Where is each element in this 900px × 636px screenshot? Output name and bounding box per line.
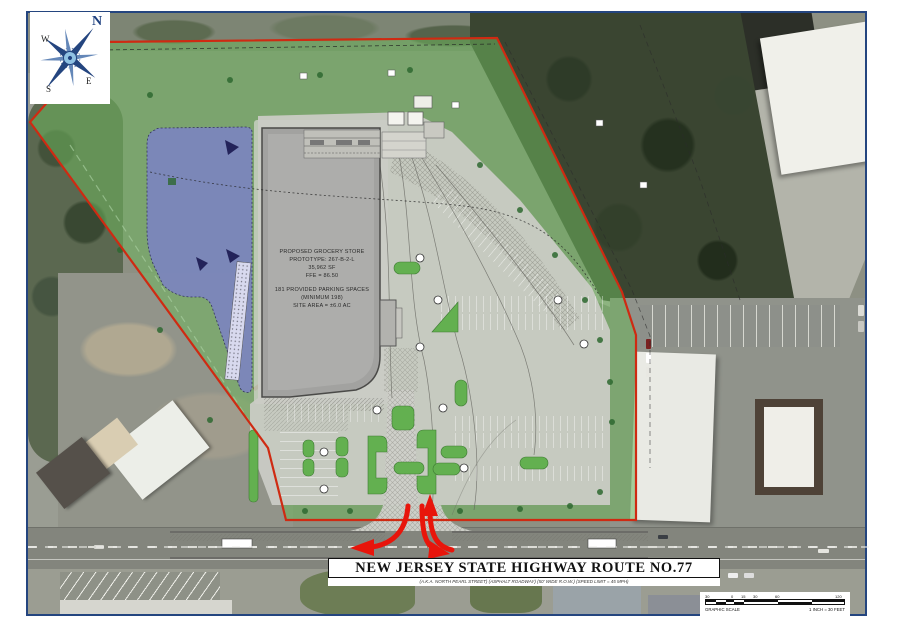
compass-west-label: W	[41, 34, 50, 44]
compass-east-label: E	[86, 76, 92, 86]
building-label-line: 35,962 SF	[256, 264, 388, 272]
drawing-frame	[26, 11, 867, 616]
highway-details: (A.K.A. NORTH PEARL STREET) (ASPHALT ROA…	[328, 578, 720, 586]
building-label-line: 181 PROVIDED PARKING SPACES	[256, 286, 388, 294]
scale-bar	[705, 599, 845, 605]
compass-north-label: N	[92, 14, 102, 30]
graphic-scale-box: 30 0 15 30 60 120 GRAPHIC SCALE 1 INCH =…	[700, 592, 850, 622]
aerial-highway-centerline	[28, 546, 867, 548]
aerial-car	[646, 353, 651, 363]
aerial-car	[646, 339, 651, 349]
compass-rose: N W S E	[30, 12, 110, 104]
aerial-car	[728, 573, 738, 578]
aerial-car	[94, 545, 104, 549]
site-plan-sheet: PROPOSED GROCERY STORE PROTOTYPE: 267-B-…	[0, 0, 900, 636]
scale-tick: 15	[741, 594, 745, 599]
highway-label-box: NEW JERSEY STATE HIGHWAY ROUTE NO.77 (A.…	[328, 558, 720, 586]
building-label-line: PROPOSED GROCERY STORE	[256, 248, 388, 256]
scale-tick: 30	[705, 594, 709, 599]
aerial-restaurant-roof-inner	[764, 407, 814, 487]
aerial-store-white-e	[630, 352, 716, 523]
aerial-parking-stripes-e	[640, 305, 840, 347]
building-label-line: FFE = 86.50	[256, 272, 388, 280]
scale-tick: 60	[775, 594, 779, 599]
building-label: PROPOSED GROCERY STORE PROTOTYPE: 267-B-…	[256, 248, 388, 310]
scale-tick: 120	[835, 594, 842, 599]
aerial-brush-top	[88, 13, 518, 51]
aerial-car	[858, 305, 864, 316]
scale-title: GRAPHIC SCALE	[705, 607, 740, 612]
aerial-car	[744, 573, 754, 578]
aerial-car	[658, 535, 668, 539]
scale-ratio: 1 INCH = 30 FEET	[809, 607, 845, 612]
scale-tick: 0	[731, 594, 733, 599]
scale-tick: 30	[753, 594, 757, 599]
aerial-gravel-lot	[58, 273, 293, 528]
compass-south-label: S	[46, 84, 51, 94]
building-label-line: (MINIMUM 198)	[256, 294, 388, 302]
scale-tick-labels: 30 0 15 30 60 120	[705, 594, 845, 599]
building-label-line: PROTOTYPE: 267-B-2-L	[256, 256, 388, 264]
building-label-line: SITE AREA = ±6.0 AC	[256, 302, 388, 310]
aerial-car	[858, 321, 864, 332]
aerial-photo	[28, 13, 865, 614]
aerial-car	[818, 549, 829, 553]
aerial-car	[646, 367, 651, 377]
aerial-south-white-strip	[60, 600, 232, 616]
highway-name: NEW JERSEY STATE HIGHWAY ROUTE NO.77	[328, 558, 720, 578]
